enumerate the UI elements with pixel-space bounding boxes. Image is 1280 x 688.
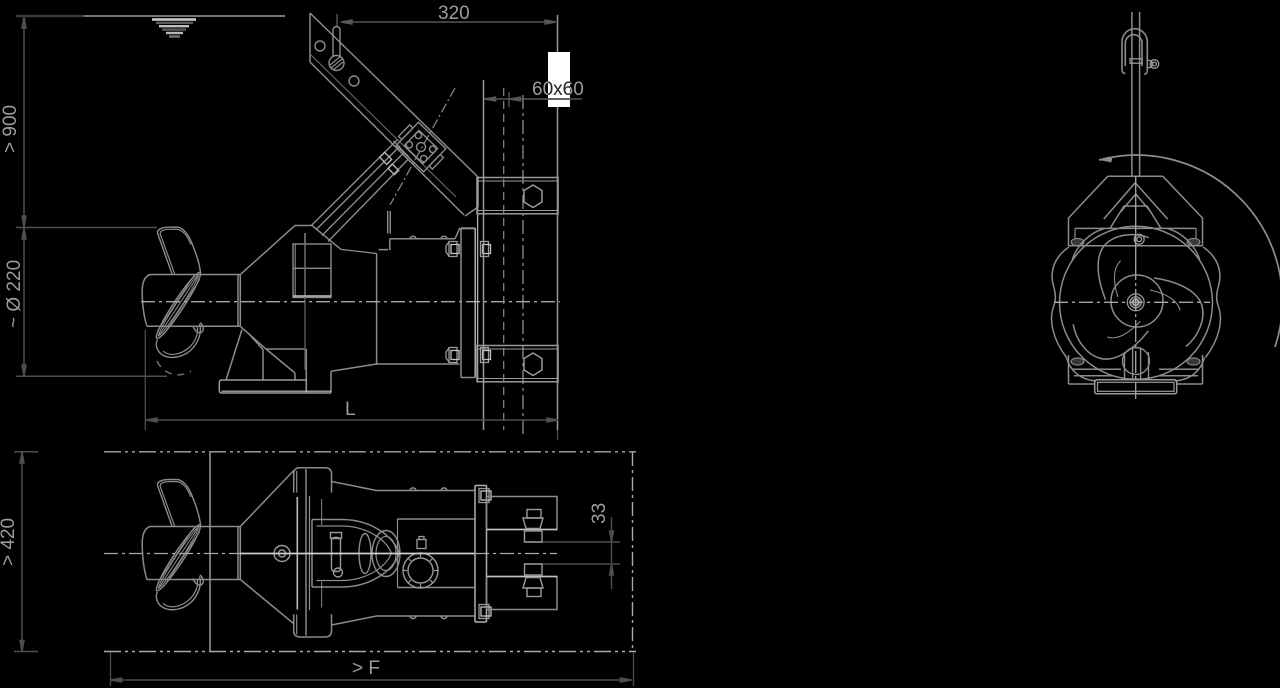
svg-text:~ Ø 220: ~ Ø 220 [4,260,25,328]
svg-text:L: L [345,399,356,420]
svg-text:320: 320 [438,3,470,24]
svg-text:> 900: > 900 [0,105,21,153]
svg-text:> F: > F [352,658,380,679]
svg-text:> 420: > 420 [0,518,19,566]
svg-text:33: 33 [589,503,610,524]
